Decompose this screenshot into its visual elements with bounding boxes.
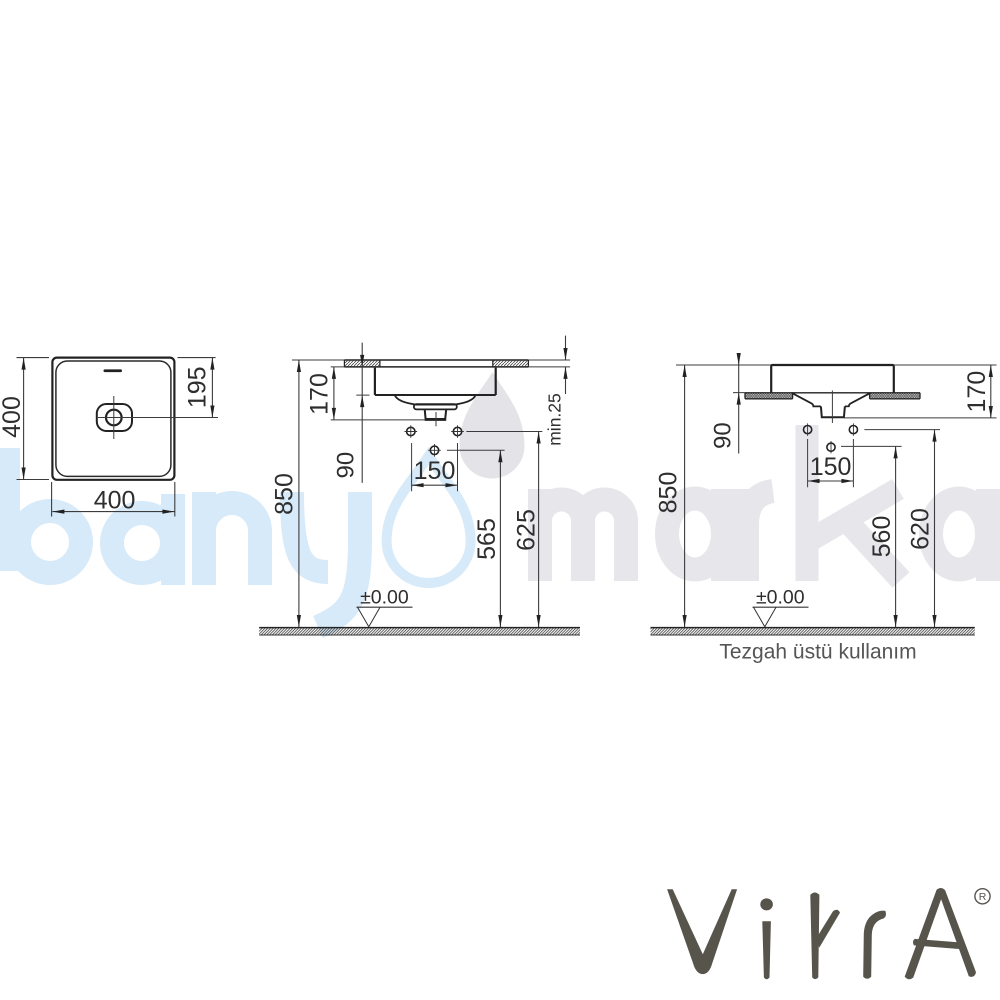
svg-text:±0.00: ±0.00 — [360, 587, 409, 609]
svg-text:620: 620 — [906, 508, 934, 550]
svg-text:±0.00: ±0.00 — [756, 587, 805, 609]
svg-text:625: 625 — [513, 509, 541, 551]
svg-text:90: 90 — [709, 422, 736, 449]
svg-text:560: 560 — [868, 516, 896, 558]
svg-text:195: 195 — [183, 366, 211, 408]
svg-text:Tezgah üstü kullanım: Tezgah üstü kullanım — [719, 641, 916, 664]
svg-text:565: 565 — [473, 518, 501, 560]
svg-text:850: 850 — [655, 472, 683, 514]
svg-text:R: R — [979, 891, 987, 903]
svg-text:min.25: min.25 — [545, 393, 565, 446]
svg-text:150: 150 — [414, 457, 456, 485]
svg-text:400: 400 — [0, 396, 26, 438]
svg-text:170: 170 — [306, 373, 334, 415]
svg-text:150: 150 — [810, 453, 852, 481]
svg-text:170: 170 — [963, 371, 991, 413]
svg-text:400: 400 — [94, 486, 136, 514]
svg-text:90: 90 — [333, 452, 360, 479]
svg-text:850: 850 — [270, 473, 298, 515]
